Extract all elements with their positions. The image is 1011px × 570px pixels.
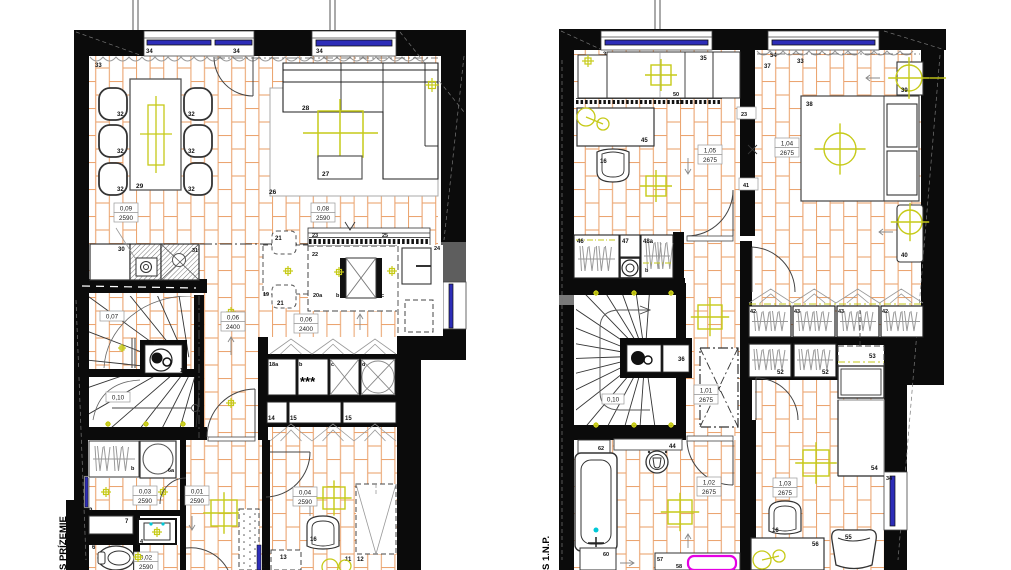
svg-text:46: 46 [577,239,584,245]
svg-text:18a: 18a [269,362,279,368]
svg-text:57: 57 [657,557,663,563]
svg-text:44: 44 [669,444,676,450]
svg-text:0,09: 0,09 [120,206,133,213]
svg-text:14: 14 [268,416,275,422]
svg-text:0,06: 0,06 [300,317,313,324]
svg-text:1,03: 1,03 [779,481,792,488]
svg-text:36: 36 [678,357,685,363]
svg-text:2675: 2675 [778,490,793,497]
svg-text:54: 54 [871,466,878,472]
svg-text:2675: 2675 [699,397,714,404]
svg-text:41: 41 [743,183,749,189]
svg-text:2590: 2590 [119,215,134,222]
svg-text:21: 21 [275,236,282,242]
svg-text:32: 32 [117,112,124,118]
svg-text:2675: 2675 [780,150,795,157]
svg-text:2590: 2590 [139,564,154,570]
svg-text:47: 47 [622,239,629,245]
svg-text:0,06: 0,06 [227,315,240,322]
svg-text:0,04: 0,04 [299,490,312,497]
svg-text:1,02: 1,02 [703,480,716,487]
svg-text:32: 32 [117,187,124,193]
svg-text:21: 21 [277,301,284,307]
svg-text:23: 23 [741,112,747,118]
svg-text:60: 60 [603,552,609,558]
svg-text:42: 42 [882,309,888,315]
svg-text:2400: 2400 [226,324,241,331]
svg-text:2400: 2400 [299,326,314,333]
svg-text:32: 32 [188,187,195,193]
svg-text:52: 52 [777,370,784,376]
svg-text:0,03: 0,03 [139,489,152,496]
svg-text:16: 16 [310,537,317,543]
svg-text:45: 45 [641,138,648,144]
svg-text:0,10: 0,10 [112,395,125,402]
svg-text:S 1.N.P.: S 1.N.P. [541,536,552,570]
svg-text:15: 15 [290,416,297,422]
svg-text:28: 28 [302,105,310,112]
svg-text:32: 32 [117,149,124,155]
svg-text:2590: 2590 [190,498,205,505]
svg-text:13: 13 [280,555,287,561]
svg-text:40: 40 [901,253,908,259]
svg-text:1,01: 1,01 [700,388,713,395]
svg-text:34: 34 [886,476,893,482]
svg-text:17: 17 [180,368,186,374]
svg-text:55: 55 [845,535,852,541]
svg-text:35: 35 [700,56,707,62]
svg-text:22: 22 [312,252,318,258]
svg-text:2590: 2590 [298,499,313,506]
svg-text:62: 62 [598,446,604,452]
svg-text:33: 33 [797,59,804,65]
svg-text:16: 16 [772,528,779,534]
svg-text:6a: 6a [168,468,175,474]
svg-text:53: 53 [869,354,876,360]
svg-text:50: 50 [673,92,679,98]
svg-text:23: 23 [312,233,318,239]
svg-text:27: 27 [322,171,330,178]
svg-text:19: 19 [263,292,269,298]
svg-text:29: 29 [136,183,144,190]
svg-text:2675: 2675 [703,157,718,164]
svg-text:20a: 20a [313,293,323,299]
svg-text:34: 34 [316,49,323,55]
svg-text:32: 32 [188,112,195,118]
svg-text:12: 12 [357,557,364,563]
svg-text:52: 52 [822,370,829,376]
svg-text:24: 24 [434,246,441,252]
svg-text:26: 26 [269,189,277,196]
svg-text:2675: 2675 [702,489,717,496]
svg-text:2590: 2590 [138,498,153,505]
svg-text:31: 31 [192,248,198,254]
svg-text:39: 39 [901,88,908,94]
svg-text:16: 16 [153,340,159,346]
svg-text:0,08: 0,08 [317,206,330,213]
svg-text:0,07: 0,07 [106,314,119,321]
svg-text:1,05: 1,05 [704,148,717,155]
svg-text:34: 34 [233,49,240,55]
svg-text:43: 43 [794,309,800,315]
svg-text:58: 58 [676,564,682,570]
svg-text:15: 15 [345,416,352,422]
svg-text:30: 30 [118,247,125,253]
svg-text:***: *** [300,374,316,389]
svg-text:0,01: 0,01 [191,489,204,496]
svg-text:56: 56 [812,542,819,548]
svg-text:34: 34 [146,49,153,55]
svg-text:1,04: 1,04 [781,141,794,148]
svg-text:42: 42 [750,309,756,315]
svg-text:37: 37 [764,64,771,70]
svg-text:32: 32 [188,149,195,155]
svg-text:38: 38 [806,102,813,108]
svg-text:S PRÍZEMIE: S PRÍZEMIE [58,516,69,570]
svg-text:0,02: 0,02 [140,555,153,562]
svg-text:0,10: 0,10 [607,397,620,404]
svg-text:33: 33 [95,63,102,69]
svg-text:2: 2 [262,564,265,570]
svg-text:2590: 2590 [316,215,331,222]
svg-text:c: c [381,293,384,299]
svg-text:16: 16 [600,159,607,165]
svg-text:43: 43 [838,309,844,315]
svg-text:48a: 48a [643,239,654,245]
svg-text:25: 25 [382,233,388,239]
